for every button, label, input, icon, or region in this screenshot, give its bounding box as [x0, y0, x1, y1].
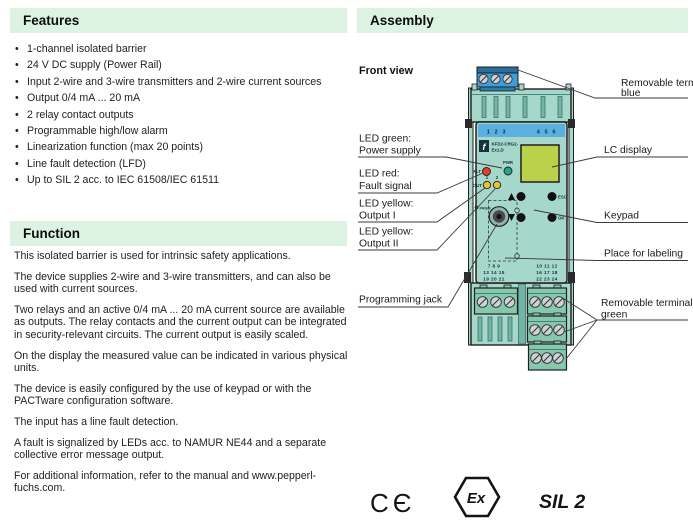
callout-text: green: [601, 310, 628, 321]
callout-text: LC display: [604, 145, 653, 156]
esc-label: ESC: [558, 195, 567, 200]
front-view-label: Front view: [359, 65, 414, 77]
ex-mark: Ex: [455, 478, 499, 516]
esc-button: [548, 192, 557, 201]
terminal-row: 22 23 24: [536, 277, 557, 282]
model-label-line2: Ex1.D: [492, 148, 504, 153]
clip: [465, 119, 472, 128]
ex-glyph: Ex: [467, 490, 486, 507]
lc-display: [521, 145, 559, 182]
prgm-label: PRGM: [480, 207, 491, 211]
sil2-mark: SIL 2: [539, 491, 585, 513]
up-button: [517, 192, 526, 201]
datasheet-page: Features 1-channel isolated barrier 24 V…: [0, 0, 693, 527]
callout-text: LED yellow:: [359, 199, 413, 210]
out-label: OUT: [473, 183, 482, 188]
green-block-4: [529, 341, 567, 370]
callout-terminals-green: Removable terminals green: [561, 297, 693, 359]
led-green-icon: [504, 167, 512, 175]
led-yellow1-icon: [483, 181, 490, 188]
callout-text: Programming jack: [359, 295, 443, 306]
callout-text: LED green:: [359, 134, 411, 145]
callout-text: Removable terminals: [601, 298, 693, 309]
screw-icon: [503, 74, 512, 83]
terminal-numbers-top-right: 4 5 6: [537, 130, 558, 136]
pwr-label: PWR: [503, 160, 514, 165]
clip: [568, 272, 575, 283]
terminal-row: 16 17 18: [536, 270, 557, 275]
screw-icon: [491, 74, 500, 83]
flt-label: FLT: [473, 169, 481, 174]
device-drawing: 1 2 3 4 5 6 f KFD2-CRG2- Ex1.D FLT PWR O…: [464, 67, 575, 370]
green-block-3: [528, 313, 567, 342]
ce-mark: CЄ: [370, 488, 415, 518]
terminal-row: 7 8 9: [488, 264, 500, 269]
callout-text: Keypad: [604, 211, 639, 222]
callout-text: blue: [621, 88, 641, 99]
callout-text: LED red:: [359, 169, 400, 180]
screw-icon: [479, 74, 488, 83]
callout-led-red: LED red: Fault signal: [358, 169, 483, 194]
callout-text: Fault signal: [359, 181, 412, 192]
terminal-numbers-top-left: 1 2 3: [487, 130, 508, 136]
callout-text: LED yellow:: [359, 227, 413, 238]
green-block-1: [475, 285, 518, 314]
terminal-block-blue: [477, 67, 518, 91]
terminal-row: 13 14 15: [483, 270, 504, 275]
callout-text: Output I: [359, 211, 396, 222]
clip: [568, 119, 575, 128]
assembly-diagram: 1 2 3 4 5 6 f KFD2-CRG2- Ex1.D FLT PWR O…: [0, 0, 693, 527]
down-button: [517, 213, 526, 222]
green-block-2: [528, 285, 567, 314]
led-yellow2-icon: [493, 181, 500, 188]
callout-text: Output II: [359, 239, 399, 250]
terminal-row: 10 11 12: [536, 264, 557, 269]
model-label-line1: KFD2-CRG2-: [492, 142, 519, 147]
callout-text: Place for labeling: [604, 249, 683, 260]
terminal-row: 19 20 21: [483, 277, 504, 282]
callout-text: Power supply: [359, 146, 422, 157]
